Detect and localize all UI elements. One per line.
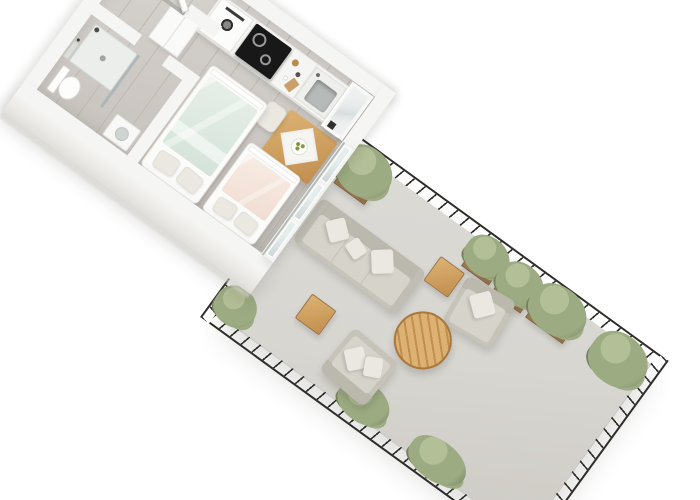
floorplan-render: [0, 0, 700, 500]
vanity-basin: [112, 124, 132, 144]
burner-large: [250, 30, 270, 50]
sofa-pillow-2: [371, 249, 394, 274]
armchair-south-pillow-2: [363, 356, 384, 379]
sink-faucet: [315, 72, 321, 78]
fruit: [300, 143, 306, 149]
fruit: [295, 146, 301, 152]
jar-amber: [290, 58, 300, 68]
shower-drain: [99, 54, 107, 62]
burner-small: [258, 52, 273, 67]
jar-dark: [294, 71, 301, 78]
wardrobe-door-seam: [162, 16, 186, 49]
